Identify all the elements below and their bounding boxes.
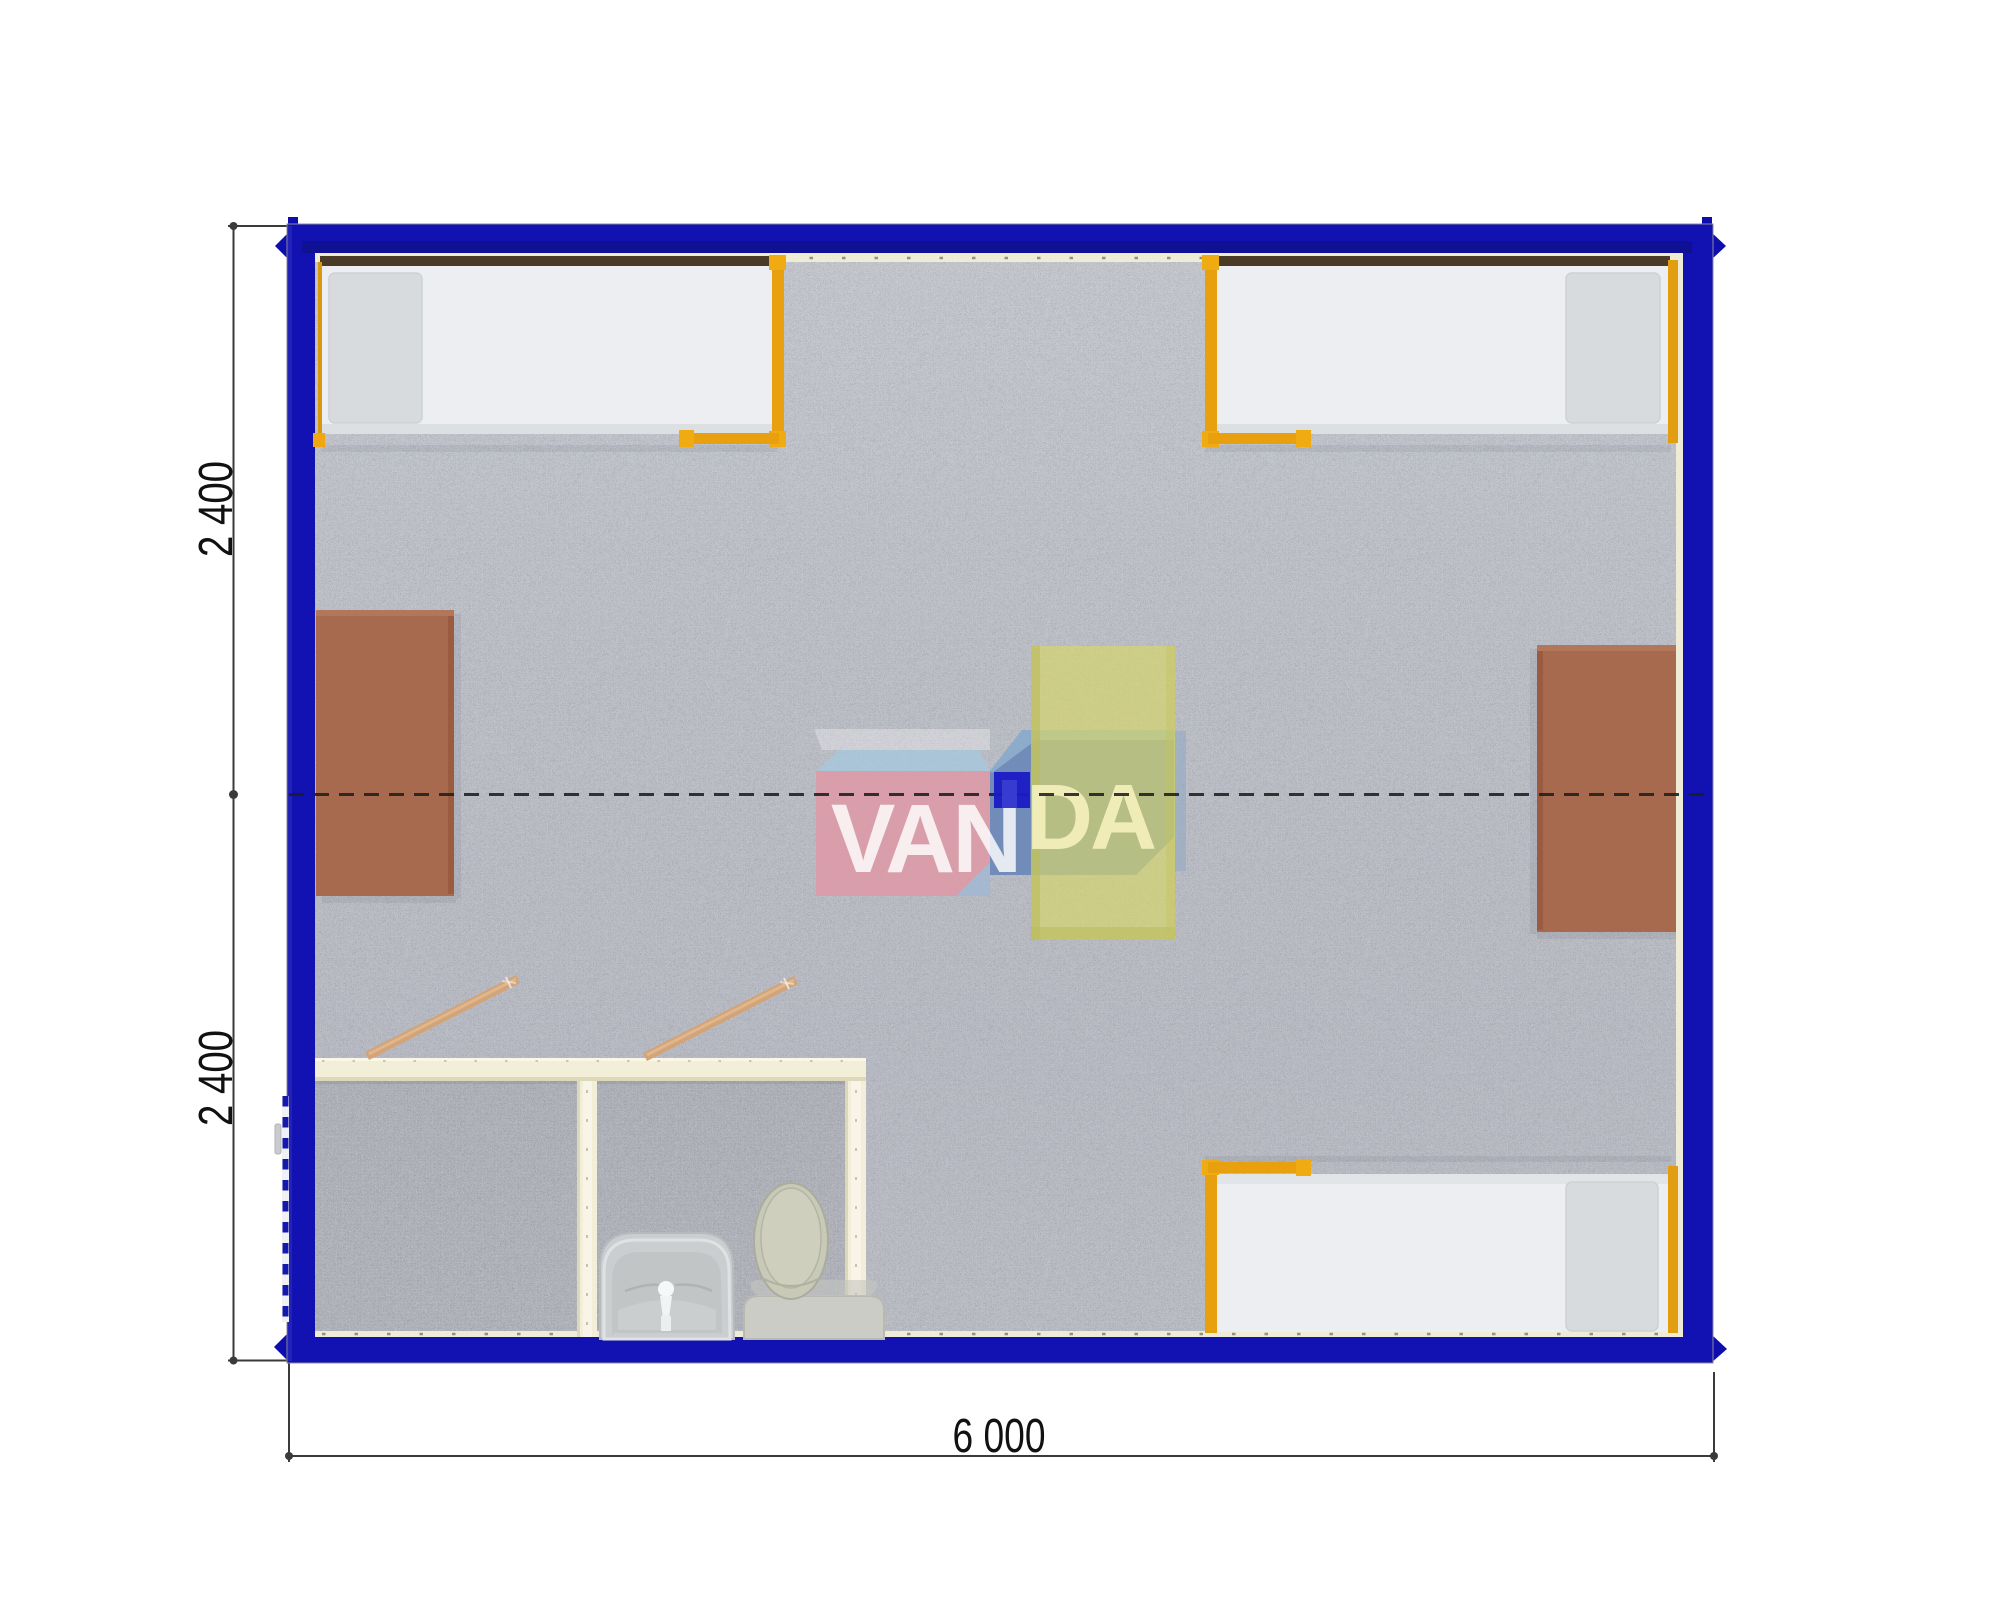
svg-text:2 400: 2 400 bbox=[190, 1030, 243, 1126]
svg-text:DA: DA bbox=[1026, 765, 1155, 869]
svg-text:2 400: 2 400 bbox=[190, 461, 243, 557]
svg-text:6 000: 6 000 bbox=[953, 1410, 1046, 1463]
svg-text:VAN: VAN bbox=[831, 784, 1020, 893]
